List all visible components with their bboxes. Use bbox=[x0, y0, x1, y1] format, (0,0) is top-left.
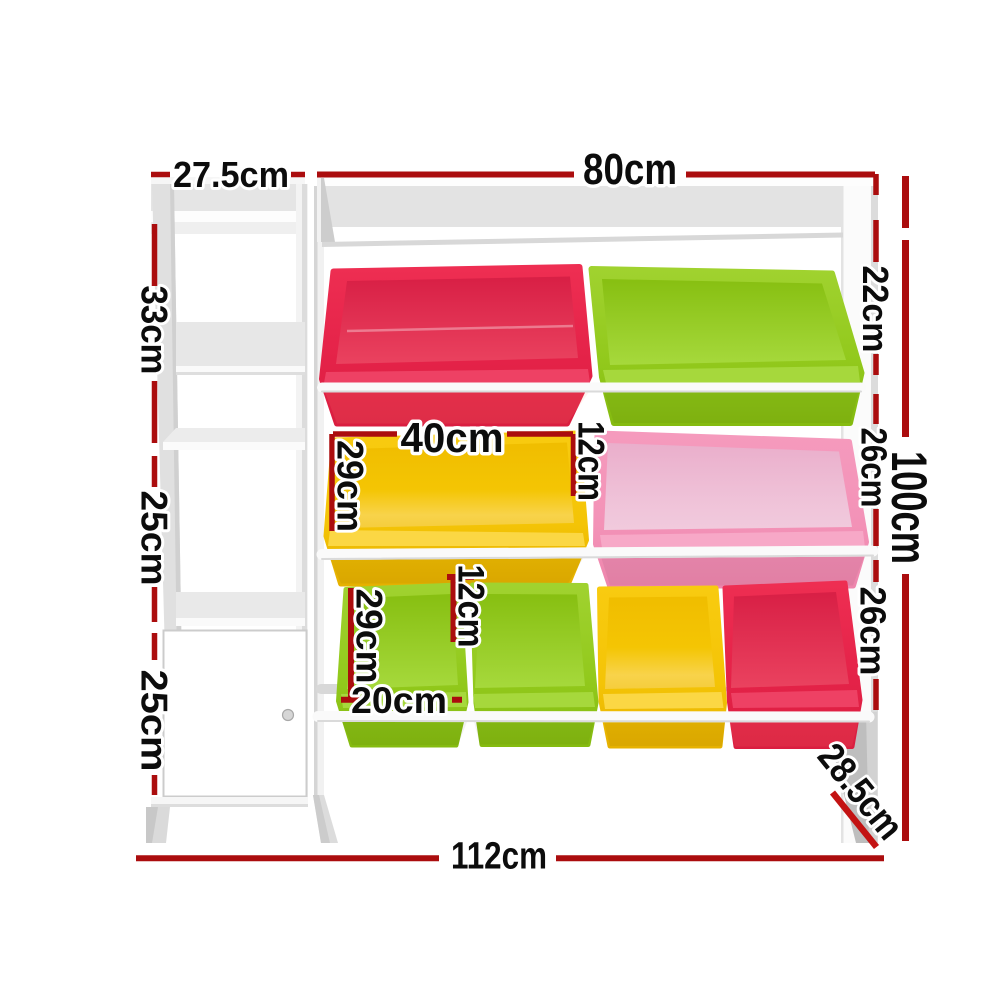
svg-text:80cm: 80cm bbox=[583, 145, 677, 194]
svg-text:100cm: 100cm bbox=[881, 451, 937, 564]
svg-text:29cm: 29cm bbox=[349, 589, 390, 684]
svg-text:25cm: 25cm bbox=[134, 670, 175, 772]
svg-text:12cm: 12cm bbox=[451, 565, 492, 648]
svg-text:29cm: 29cm bbox=[330, 440, 371, 532]
svg-text:25cm: 25cm bbox=[134, 491, 175, 586]
svg-text:40cm: 40cm bbox=[401, 414, 504, 461]
svg-text:12cm: 12cm bbox=[571, 421, 612, 501]
svg-text:20cm: 20cm bbox=[351, 680, 447, 721]
svg-text:112cm: 112cm bbox=[451, 836, 547, 878]
svg-text:22cm: 22cm bbox=[855, 266, 896, 353]
svg-text:33cm: 33cm bbox=[134, 286, 175, 375]
svg-text:27.5cm: 27.5cm bbox=[173, 154, 289, 195]
svg-text:26cm: 26cm bbox=[853, 587, 894, 676]
